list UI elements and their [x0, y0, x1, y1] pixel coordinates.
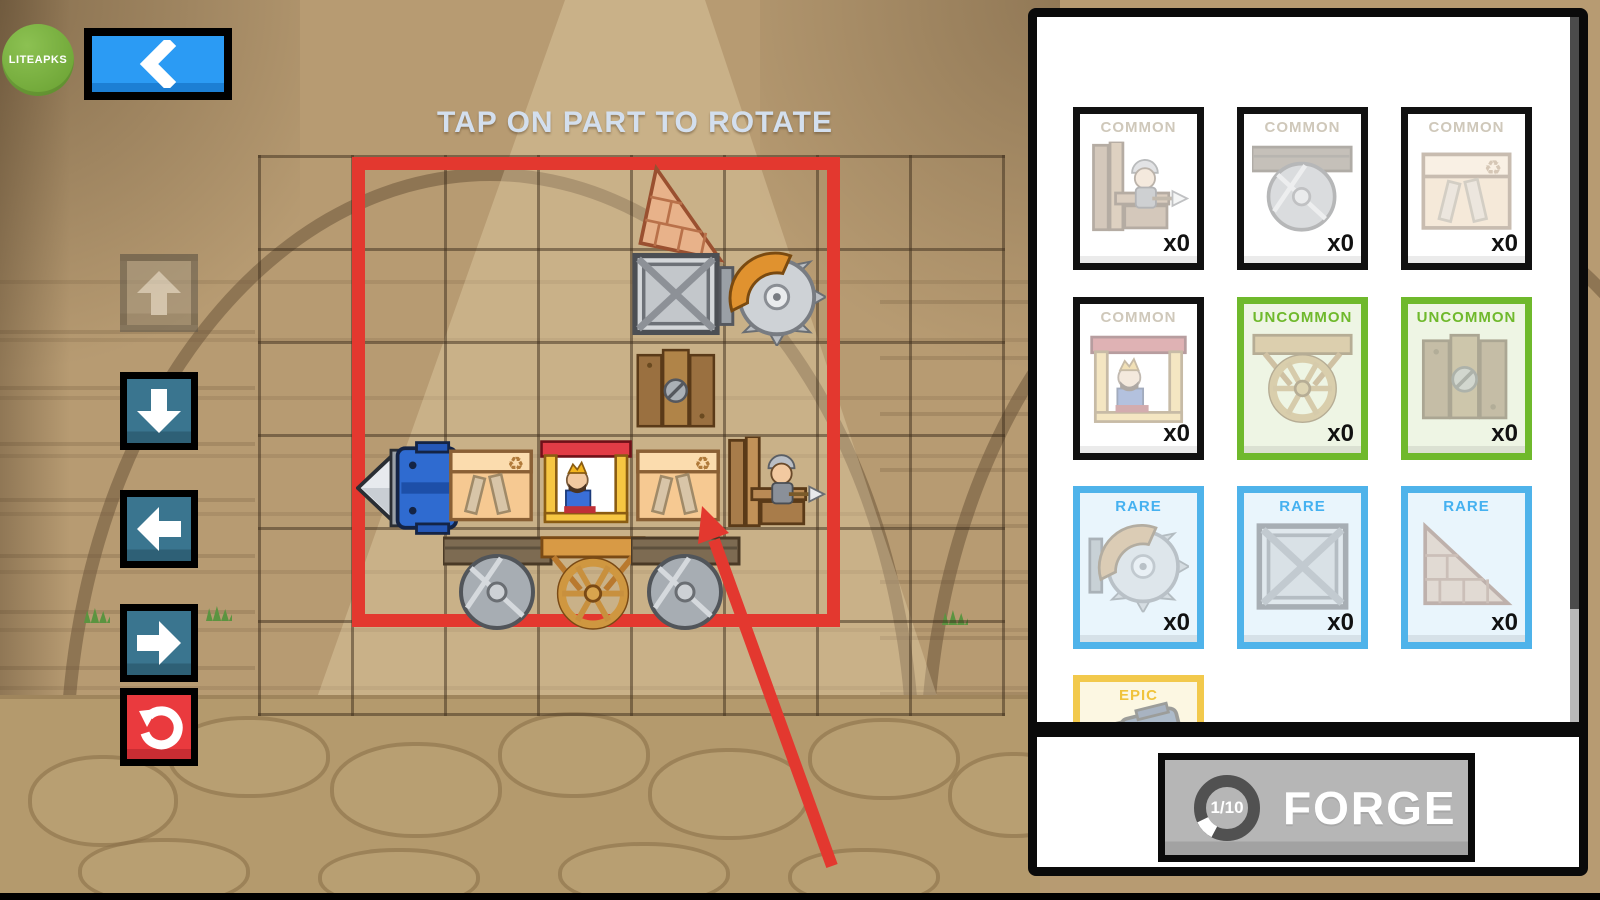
part-armored-wheel-left[interactable] [442, 532, 554, 632]
card-count: x0 [1327, 230, 1354, 258]
rotate-ccw-icon [135, 703, 183, 751]
move-left-button[interactable] [120, 490, 198, 568]
card-count: x0 [1491, 420, 1518, 448]
card-list-scrollbar[interactable] [1570, 17, 1579, 722]
card-rocket-booster[interactable]: EPIC [1073, 675, 1204, 722]
card-metal-crate[interactable]: RARE x0 [1237, 486, 1368, 649]
part-circular-saw[interactable] [716, 248, 828, 346]
card-rarity-label: COMMON [1080, 309, 1197, 326]
card-rarity-label: COMMON [1080, 119, 1197, 136]
circular-saw-icon [1088, 519, 1189, 614]
back-button[interactable] [84, 28, 232, 100]
arrow-right-icon [135, 619, 183, 667]
card-ballista-seat[interactable]: COMMON x0 [1073, 107, 1204, 270]
cobblestone [558, 842, 730, 900]
card-count: x0 [1327, 609, 1354, 637]
card-circular-saw[interactable]: RARE x0 [1073, 486, 1204, 649]
part-king-cage[interactable] [538, 430, 634, 530]
cobblestone [28, 755, 178, 847]
wooden-door-icon [1416, 330, 1517, 425]
arrow-up-icon [135, 269, 183, 317]
forge-progress-label: 1/10 [1189, 770, 1265, 846]
card-wooden-wheel[interactable]: UNCOMMON x0 [1237, 297, 1368, 460]
forge-button[interactable]: 1/10 FORGE [1158, 753, 1475, 862]
forge-progress-ring: 1/10 [1189, 770, 1265, 846]
armored-wheel-icon [1252, 140, 1353, 235]
card-rarity-label: EPIC [1080, 687, 1197, 704]
card-count: x0 [1491, 230, 1518, 258]
card-rarity-label: RARE [1080, 498, 1197, 515]
card-count: x0 [1327, 420, 1354, 448]
move-right-button[interactable] [120, 604, 198, 682]
game-screen: LITEAPKS TAP ON PART TO ROTATE [0, 0, 1600, 900]
bottom-letterbox-bar [0, 893, 1600, 900]
card-rarity-label: COMMON [1408, 119, 1525, 136]
part-ballista-seat[interactable] [724, 434, 826, 532]
wooden-wheel-icon [1252, 330, 1353, 425]
ballista-seat-icon [1088, 140, 1189, 235]
card-rarity-label: COMMON [1244, 119, 1361, 136]
cobblestone [330, 742, 502, 838]
card-rarity-label: RARE [1244, 498, 1361, 515]
liteapks-badge-label: LITEAPKS [9, 54, 67, 66]
cobblestone [78, 838, 250, 900]
brick-ramp-icon [1416, 519, 1517, 614]
king-cage-icon [1088, 330, 1189, 425]
card-wooden-door[interactable]: UNCOMMON x0 [1401, 297, 1532, 460]
cobblestone [498, 712, 650, 798]
rocket-booster-icon [1088, 708, 1189, 722]
arrow-left-icon [135, 505, 183, 553]
card-count: x0 [1163, 420, 1190, 448]
card-king-cage[interactable]: COMMON x0 [1073, 297, 1204, 460]
part-cardboard-box-right[interactable] [631, 434, 725, 530]
part-armored-wheel-right[interactable] [630, 532, 742, 632]
card-rarity-label: UNCOMMON [1244, 309, 1361, 326]
hint-title: TAP ON PART TO ROTATE [330, 106, 940, 140]
scrollbar-thumb[interactable] [1570, 17, 1579, 609]
cobblestone [808, 718, 960, 800]
part-metal-crate[interactable] [628, 246, 724, 342]
card-count: x0 [1163, 609, 1190, 637]
chevron-left-icon [136, 40, 180, 88]
card-rarity-label: RARE [1408, 498, 1525, 515]
part-cardboard-box-left[interactable] [444, 434, 538, 530]
card-rarity-label: UNCOMMON [1408, 309, 1525, 326]
rotate-button[interactable] [120, 688, 198, 766]
card-brick-ramp[interactable]: RARE x0 [1401, 486, 1532, 649]
forge-button-label: FORGE [1283, 781, 1457, 835]
arrow-down-icon [135, 387, 183, 435]
cardboard-box-icon [1416, 140, 1517, 235]
card-count: x0 [1163, 230, 1190, 258]
panel-divider [1037, 722, 1580, 737]
card-list: COMMON x0 COMMON x0 COMMON x0 COMMON x0 … [1037, 17, 1570, 722]
part-wooden-door[interactable] [631, 342, 724, 436]
cobblestone [648, 748, 810, 840]
card-cardboard-box[interactable]: COMMON x0 [1401, 107, 1532, 270]
liteapks-badge: LITEAPKS [2, 24, 74, 96]
card-armored-wheel[interactable]: COMMON x0 [1237, 107, 1368, 270]
metal-crate-icon [1252, 519, 1353, 614]
card-count: x0 [1491, 609, 1518, 637]
move-down-button[interactable] [120, 372, 198, 450]
move-up-button[interactable] [120, 254, 198, 332]
